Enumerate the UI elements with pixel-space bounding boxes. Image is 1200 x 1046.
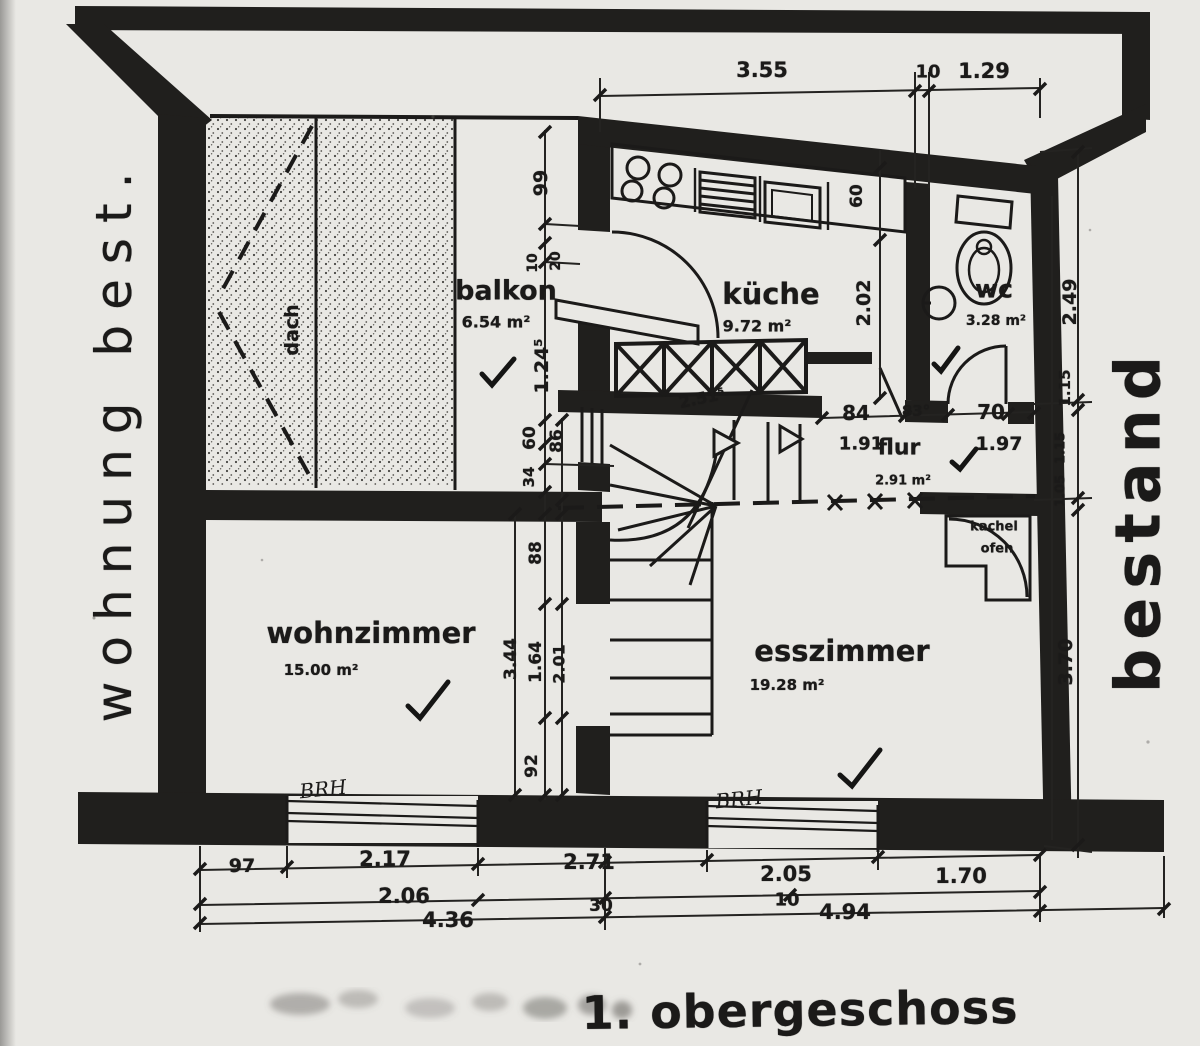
room-label-esszimmer: esszimmer (754, 634, 929, 668)
dim-label: 3.55 (736, 58, 788, 82)
floor-plan-drawing (0, 0, 1200, 1046)
dim-label: 3.44 (501, 638, 521, 680)
room-area-balkon: 6.54 m² (462, 313, 531, 332)
dim-label: 1.97 (976, 433, 1023, 455)
cooktop-burner (659, 164, 681, 186)
dim-label: 2.17 (359, 847, 411, 871)
dim-label: 34 (520, 467, 538, 488)
dim-label: 2.05 (760, 862, 812, 886)
room-area-esszimmer: 19.28 m² (750, 676, 825, 694)
scan-smudges (270, 990, 632, 1019)
room-label-wohnzimmer: wohnzimmer (266, 616, 475, 650)
dim-label: 2.49 (1059, 279, 1081, 326)
cooktop-burner (622, 181, 642, 201)
dim-label: 3.70 (1055, 639, 1077, 686)
dim-label: 20 (548, 251, 564, 270)
handwritten-brh-left: BRH (298, 775, 347, 804)
checkmark-balkon (482, 359, 514, 385)
room-label-kachelofen-1: kachel (970, 520, 1018, 535)
room-label-kachelofen-2: ofen (981, 542, 1014, 557)
dim-label: 1.24⁵ (531, 338, 553, 393)
wall-flur-south (920, 492, 1038, 516)
dim-label: 1.15 (1056, 369, 1074, 406)
room-label-kueche: küche (722, 277, 819, 311)
dim-label: 2.02 (853, 280, 875, 327)
room-label-dach: dach (281, 304, 303, 355)
dim-label: 88 (526, 541, 546, 565)
dim-label: 2.71 (563, 850, 615, 874)
checkmark-esszimmer (840, 750, 880, 786)
dim-label: 60 (847, 184, 867, 208)
room-label-balkon: balkon (455, 276, 557, 307)
room-area-flur: 2.91 m² (875, 474, 931, 489)
dim-label: 1.29 (958, 59, 1010, 83)
dim-label: 2.01 (550, 644, 569, 683)
checkmark-flur (952, 449, 976, 469)
wall-left (158, 114, 206, 798)
window-wohnzimmer (287, 796, 478, 847)
dim-label: 4.36 (422, 908, 474, 932)
dim-label: 10 (915, 62, 940, 83)
dim-label: 70 (977, 400, 1005, 424)
wash-basin (922, 287, 955, 319)
room-area-wohnzimmer: 15.00 m² (284, 661, 359, 679)
room-area-wc: 3.28 m² (966, 313, 1026, 329)
dim-label: 10 (774, 890, 799, 911)
room-area-kueche: 9.72 m² (723, 317, 792, 336)
cooktop-burner (627, 157, 649, 179)
wc-door (948, 346, 1006, 404)
wall-bottom (78, 792, 1164, 852)
dim-label: 86 (547, 429, 567, 453)
dim-label: 1.64 (526, 641, 546, 683)
dim-label: 1.70 (935, 864, 987, 888)
dim-label: 97 (229, 855, 255, 877)
margin-label-right: bestand (1102, 347, 1175, 693)
dim-label: 10 (525, 253, 541, 272)
dim-label: 1.15 (1054, 432, 1069, 464)
page-title: 1. obergeschoss (581, 980, 1019, 1040)
handwritten-brh-right: BRH (714, 785, 763, 814)
dim-label: 1.91 (839, 434, 883, 455)
dim-label: 4.94 (819, 900, 871, 924)
stair-window (582, 407, 602, 464)
dim-label: 99 (530, 170, 552, 196)
margin-label-left: wohnung best. (85, 158, 143, 723)
room-label-flur: flur (878, 436, 921, 461)
dim-label: 83° (902, 402, 930, 420)
dim-label: 30 (589, 896, 613, 916)
dach-hatch (208, 118, 454, 486)
checkmark-wc (934, 348, 958, 371)
dim-label: 2.06 (378, 884, 430, 908)
dim-label: 60 (520, 426, 540, 450)
dim-label: 1.05 (1054, 475, 1069, 507)
dim-label: 84 (842, 401, 870, 425)
wall-kueche-north (578, 116, 1036, 194)
checkmark-wohnzimmer (408, 682, 448, 718)
floor-plan-scan: wohnung best. bestand 1. obergeschoss da… (0, 0, 1200, 1046)
dim-label: 92 (522, 754, 542, 778)
room-label-wc: wc (975, 275, 1013, 304)
